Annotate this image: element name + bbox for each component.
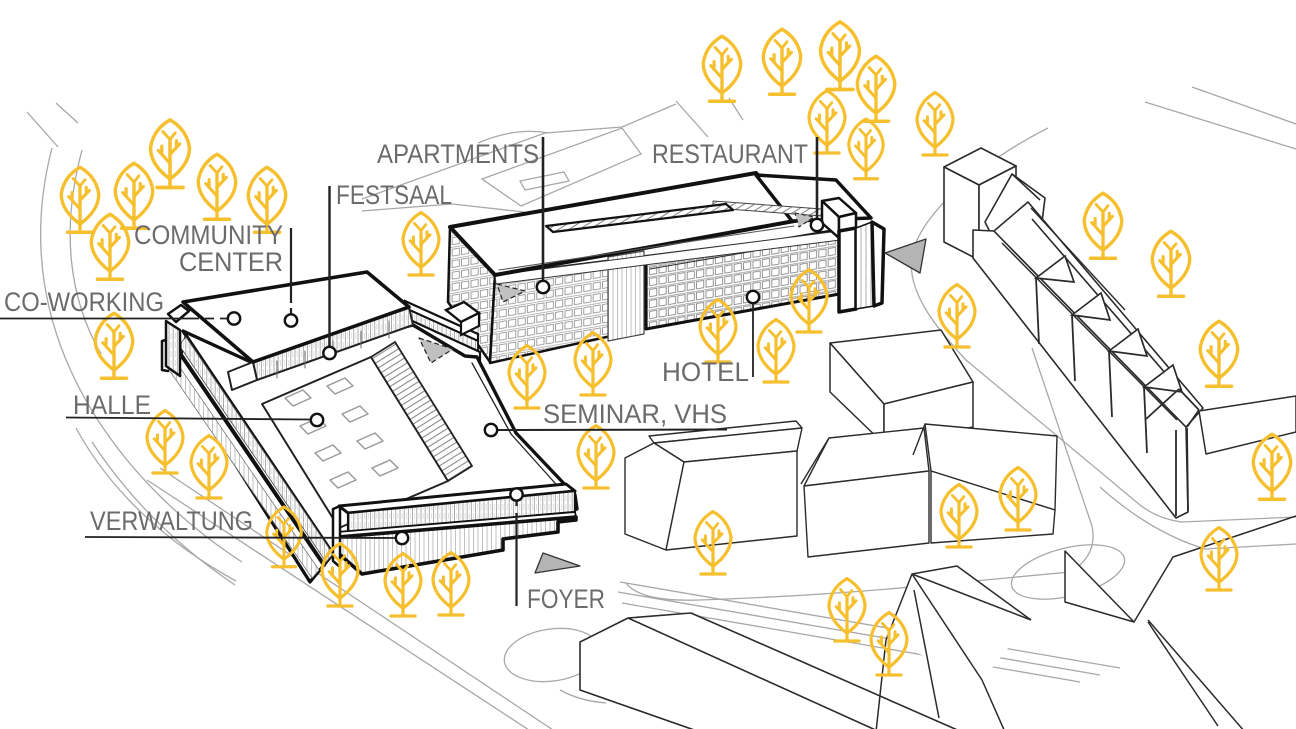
svg-text:CENTER: CENTER <box>179 247 283 277</box>
svg-text:HOTEL: HOTEL <box>662 357 749 387</box>
svg-text:RESTAURANT: RESTAURANT <box>652 139 808 169</box>
svg-text:FESTSAAL: FESTSAAL <box>336 180 452 210</box>
svg-text:SEMINAR, VHS: SEMINAR, VHS <box>543 399 727 429</box>
svg-text:CO-WORKING: CO-WORKING <box>4 287 164 317</box>
svg-text:COMMUNITY: COMMUNITY <box>134 220 283 250</box>
svg-text:FOYER: FOYER <box>527 584 605 614</box>
svg-text:VERWALTUNG: VERWALTUNG <box>90 506 253 536</box>
svg-text:HALLE: HALLE <box>73 390 151 420</box>
svg-text:APARTMENTS: APARTMENTS <box>377 139 539 169</box>
